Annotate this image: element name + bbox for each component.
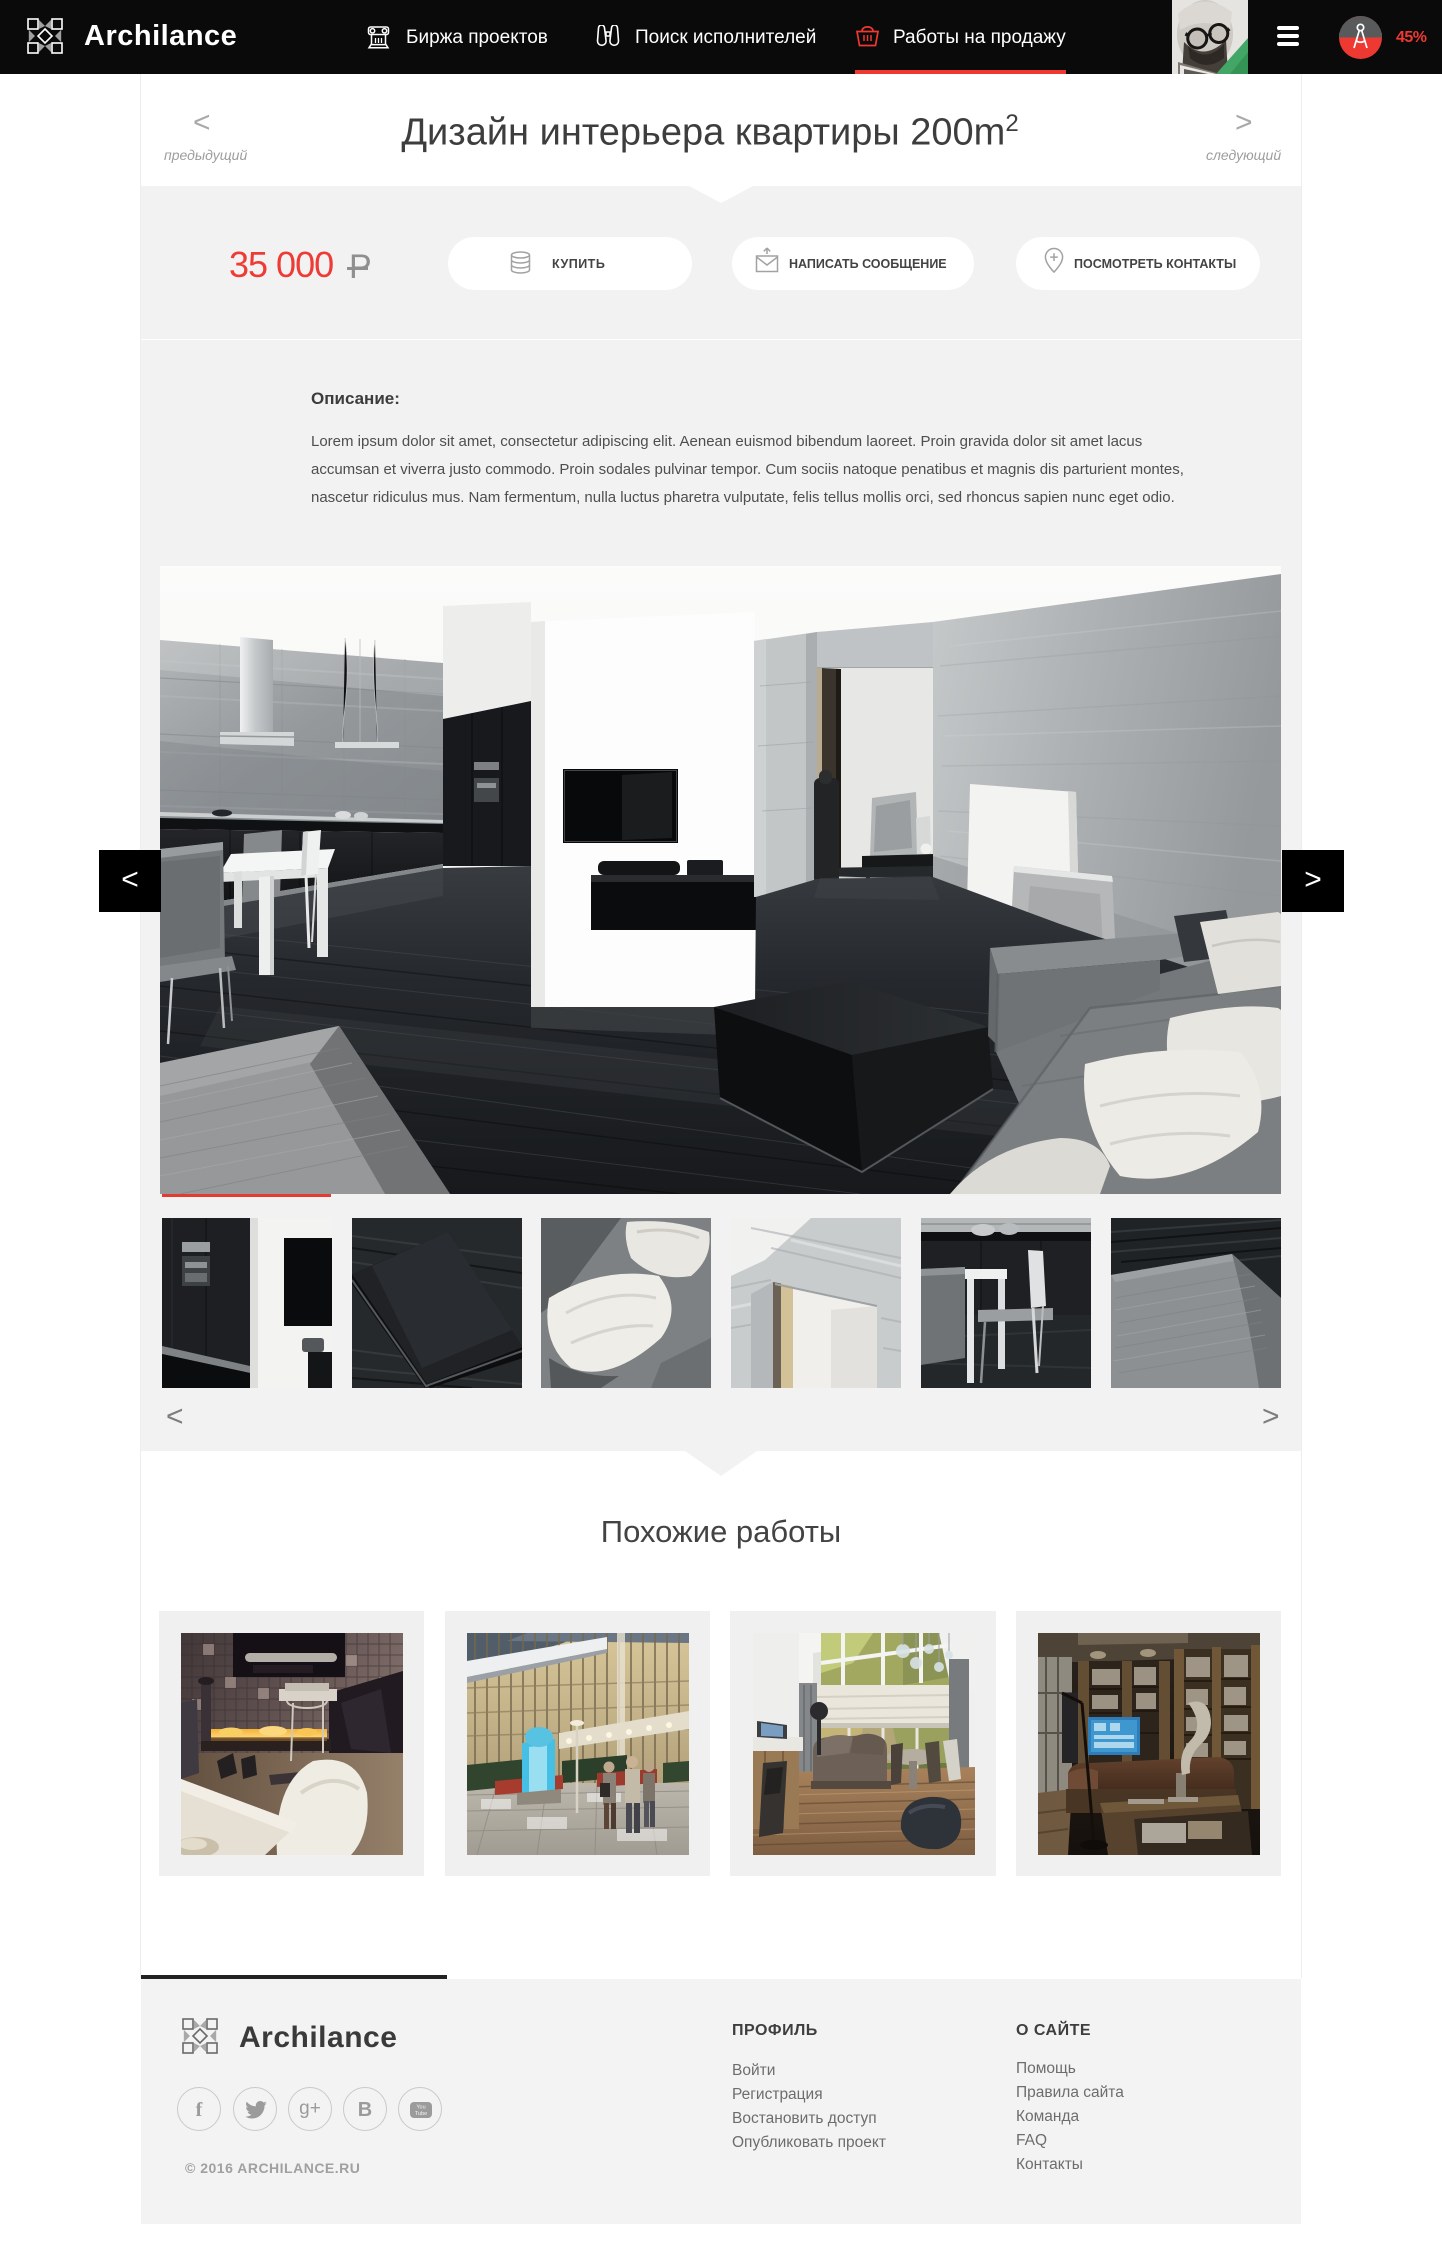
svg-text:Tube: Tube — [415, 2111, 427, 2117]
svg-text:You: You — [416, 2105, 425, 2111]
